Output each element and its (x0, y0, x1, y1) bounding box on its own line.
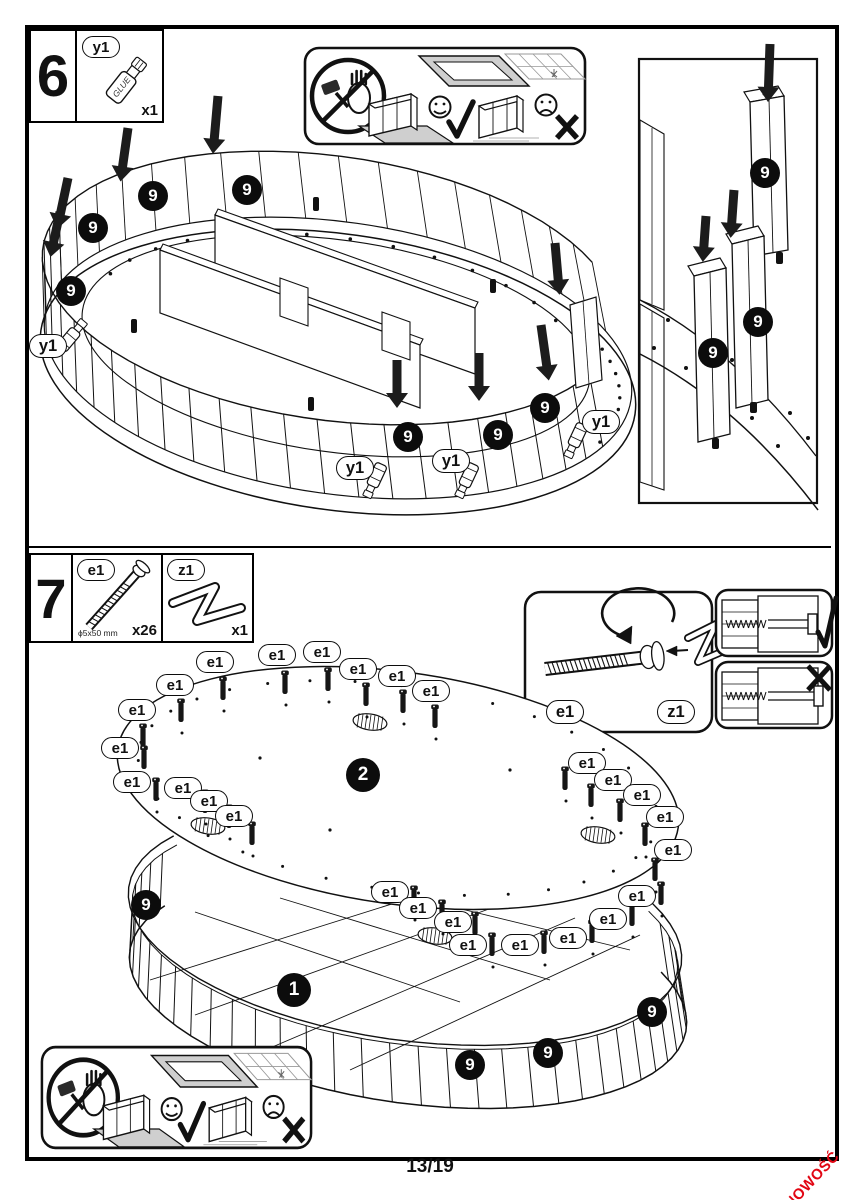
step6-main-illustration (30, 140, 640, 545)
warning-soft-surface-bottom (40, 1045, 313, 1150)
step7-header-box: 7 e1 ϕ5x50 mm x26 z1 x1 (29, 553, 254, 643)
glue-qty: x1 (141, 102, 158, 119)
screw-qty: x26 (132, 622, 157, 639)
step7-tool-cell: z1 x1 (163, 555, 252, 641)
section-divider (29, 546, 831, 548)
allen-key-qty: x1 (231, 622, 248, 639)
instruction-page: 6 y1 GLUE x1 7 e1 ϕ5x5 (0, 0, 849, 1200)
step6-detail-panel (638, 58, 818, 504)
step7-screw-cell: e1 ϕ5x50 mm x26 (73, 555, 163, 641)
step6-header-box: 6 y1 GLUE x1 (29, 29, 164, 123)
screw-size: ϕ5x50 mm (78, 628, 118, 638)
warning-soft-surface-top (303, 46, 587, 146)
step7-number: 7 (31, 555, 73, 641)
step6-number: 6 (31, 31, 77, 121)
page-number: 13/19 (380, 1156, 480, 1178)
step6-part-cell: y1 GLUE x1 (77, 31, 162, 121)
